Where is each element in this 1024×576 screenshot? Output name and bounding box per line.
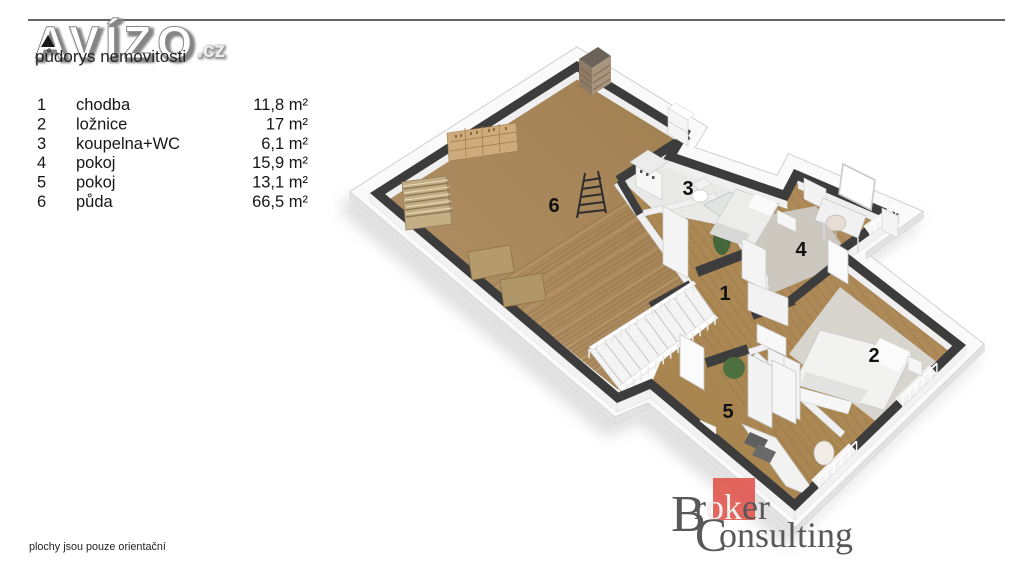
svg-text:2: 2 [37, 115, 46, 133]
svg-text:ložnice: ložnice [76, 115, 127, 133]
svg-text:chodba: chodba [76, 96, 131, 114]
svg-text:půdorys nemovitosti: půdorys nemovitosti [35, 47, 186, 66]
svg-text:15,9 m²: 15,9 m² [252, 154, 308, 172]
svg-text:plochy jsou pouze orientační: plochy jsou pouze orientační [29, 541, 166, 553]
svg-text:3: 3 [682, 178, 693, 200]
svg-text:4: 4 [37, 154, 46, 172]
svg-text:onsulting: onsulting [719, 515, 853, 555]
svg-text:17 m²: 17 m² [266, 115, 309, 133]
svg-text:půda: půda [76, 193, 114, 211]
svg-text:13,1 m²: 13,1 m² [252, 174, 308, 192]
svg-text:.cz: .cz [197, 39, 225, 62]
svg-text:pokoj: pokoj [76, 174, 115, 192]
svg-text:11,8 m²: 11,8 m² [253, 96, 308, 114]
svg-text:koupelna+WC: koupelna+WC [76, 135, 180, 153]
svg-text:6: 6 [548, 195, 559, 217]
svg-text:4: 4 [795, 239, 807, 261]
svg-text:5: 5 [722, 401, 733, 423]
svg-text:1: 1 [719, 283, 730, 305]
svg-text:66,5 m²: 66,5 m² [252, 193, 308, 211]
svg-text:6,1 m²: 6,1 m² [261, 135, 308, 153]
svg-text:1: 1 [37, 96, 46, 114]
svg-text:5: 5 [37, 174, 46, 192]
svg-text:3: 3 [37, 135, 46, 153]
svg-text:2: 2 [868, 345, 879, 367]
svg-text:6: 6 [37, 193, 46, 211]
svg-text:pokoj: pokoj [76, 154, 115, 172]
